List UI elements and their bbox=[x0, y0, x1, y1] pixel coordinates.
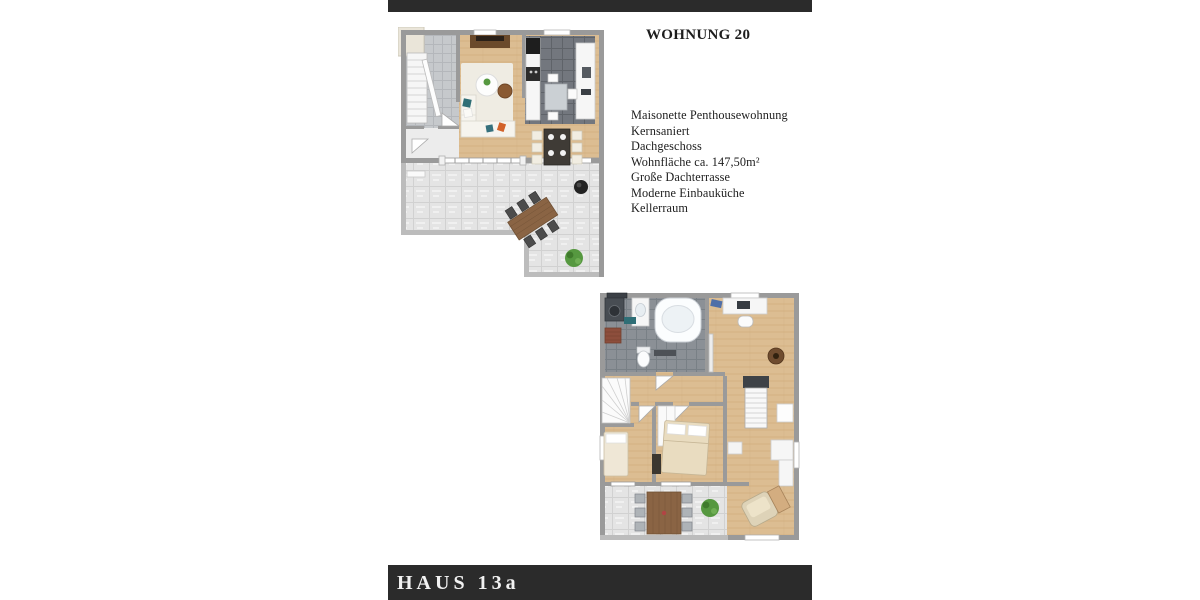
description-line: Kellerraum bbox=[631, 201, 788, 217]
plant-icon bbox=[565, 249, 583, 267]
grill-icon bbox=[574, 180, 588, 194]
dark-mat bbox=[654, 350, 676, 356]
floor-plan-lower-level bbox=[597, 290, 802, 543]
footer-bar: HAUS 13a bbox=[388, 565, 812, 600]
description-line: Dachgeschoss bbox=[631, 139, 788, 155]
kitchen-counter-right bbox=[576, 43, 595, 119]
description-line: Moderne Einbauküche bbox=[631, 186, 788, 202]
page-title: WOHNUNG 20 bbox=[646, 27, 750, 44]
kitchen-table bbox=[545, 84, 567, 110]
header-bar bbox=[388, 0, 812, 12]
curved-staircase-icon bbox=[602, 378, 630, 423]
dresser bbox=[652, 454, 661, 474]
toilet-icon bbox=[638, 351, 650, 367]
floor-plan-upper-svg bbox=[398, 27, 607, 280]
desk-chair bbox=[738, 316, 753, 327]
description-line: Kernsaniert bbox=[631, 124, 788, 140]
footer-label: HAUS 13a bbox=[388, 570, 520, 595]
terrace-railing bbox=[407, 171, 425, 177]
description-line: Maisonette Penthousewohnung bbox=[631, 108, 788, 124]
brochure-page: WOHNUNG 20 Maisonette Penthousewohnung K… bbox=[0, 0, 1200, 600]
hall-cabinet bbox=[728, 442, 742, 454]
cabinet bbox=[771, 440, 793, 460]
fridge bbox=[526, 38, 540, 54]
sink bbox=[582, 67, 591, 78]
straight-staircase-icon bbox=[743, 376, 769, 428]
door-mat bbox=[777, 404, 793, 422]
bath-mat bbox=[624, 317, 636, 324]
shelf bbox=[605, 328, 621, 343]
apartment-description: Maisonette Penthousewohnung Kernsaniert … bbox=[631, 108, 788, 217]
plant-icon bbox=[701, 499, 719, 517]
floor-plan-lower-svg bbox=[597, 290, 802, 543]
floor-plan-upper-level bbox=[398, 27, 607, 280]
pouf bbox=[498, 84, 512, 98]
stair-railing bbox=[709, 334, 713, 372]
description-line: Große Dachterrasse bbox=[631, 170, 788, 186]
dining-table bbox=[532, 129, 582, 165]
description-line: Wohnfläche ca. 147,50m² bbox=[631, 155, 788, 171]
double-bed bbox=[661, 420, 710, 475]
